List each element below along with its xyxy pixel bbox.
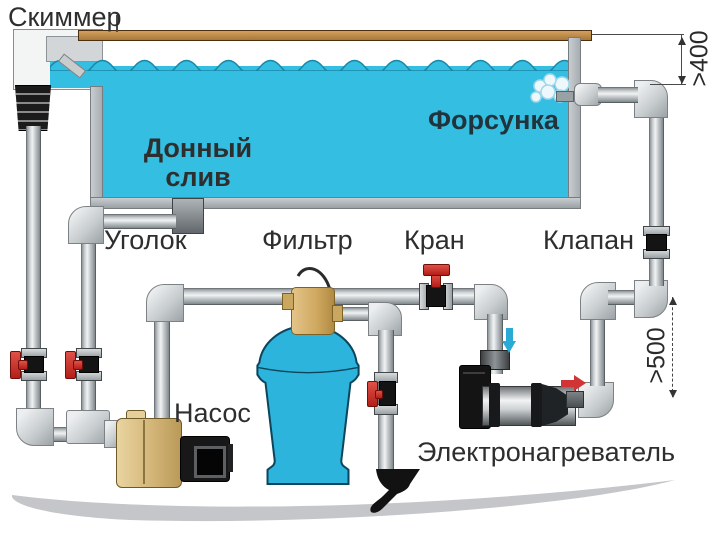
deck-board (78, 30, 592, 41)
pump-motor-cap (228, 444, 233, 472)
tap-label: Кран (404, 226, 465, 255)
heater-label: Электронагреватель (417, 438, 675, 467)
pump-discharge-riser (154, 316, 170, 426)
dim500-arrow-bottom (669, 390, 677, 398)
check-valve-label: Клапан (543, 226, 634, 255)
check-valve-body (646, 234, 667, 251)
filter-tank (250, 318, 366, 486)
nozzle-elbow (634, 80, 668, 118)
return-vertical-pipe (649, 106, 664, 286)
skimmer-label: Скиммер (8, 3, 122, 32)
dim500-label: >500 (644, 325, 671, 387)
pump-body (116, 418, 182, 488)
dim500-arrow-top (669, 297, 677, 305)
filter-multiport-valve (291, 287, 335, 335)
flow-down-arrow-stem (506, 328, 513, 341)
suction-elbow (16, 408, 54, 446)
heater-box-line (463, 372, 485, 374)
filter-label: Фильтр (262, 226, 353, 255)
pump-body-seam (143, 420, 145, 484)
nozzle-pipe (598, 87, 638, 103)
dim500-line (672, 297, 673, 397)
flow-right-arrow-stem (561, 380, 574, 387)
floor-drain-funnel (368, 469, 426, 517)
flow-right-arrow-icon (574, 375, 586, 391)
nozzle-label: Форсунка (428, 106, 559, 135)
pool-left-wall (90, 86, 103, 209)
filter-valve-port-right (332, 305, 343, 322)
skimmer-valve-stem (18, 360, 28, 370)
nozzle-splash-icon (524, 70, 574, 110)
waste-valve-stem (375, 390, 383, 399)
pool-right-wall (568, 37, 581, 209)
drain-elbow (68, 206, 104, 244)
tap-body (426, 285, 446, 307)
dim400-label: >400 (687, 29, 714, 89)
nozzle-stub (556, 91, 574, 102)
drain-valve-stem (73, 360, 83, 370)
pump-discharge-elbow (146, 284, 184, 322)
heater-outlet-stub (566, 391, 584, 408)
tap-handle (423, 264, 450, 276)
filter-valve-port-left (282, 293, 294, 310)
heater-ring-2 (531, 383, 542, 427)
dim400-ext-top (592, 34, 684, 35)
bottom-drain-label-line2: слив (165, 162, 230, 192)
skimmer-basket (15, 85, 51, 131)
elbow-label: Уголок (104, 226, 187, 255)
return-riser (590, 312, 605, 386)
heater-ring-1 (489, 383, 500, 427)
water-surface-waves (50, 55, 570, 71)
pool-plumbing-diagram: >400 >500 Скиммер Донный слив Форсунка У… (0, 0, 718, 538)
flow-down-arrow-icon (502, 341, 516, 353)
drain-pipe-vertical (81, 238, 96, 416)
pump-motor-face (194, 446, 226, 478)
dim400-ext-bottom (650, 84, 686, 85)
pool-bottom (90, 197, 581, 209)
pump-label: Насос (174, 399, 251, 428)
bottom-drain-label: Донный слив (140, 134, 256, 192)
bottom-drain-label-line1: Донный (144, 133, 252, 163)
